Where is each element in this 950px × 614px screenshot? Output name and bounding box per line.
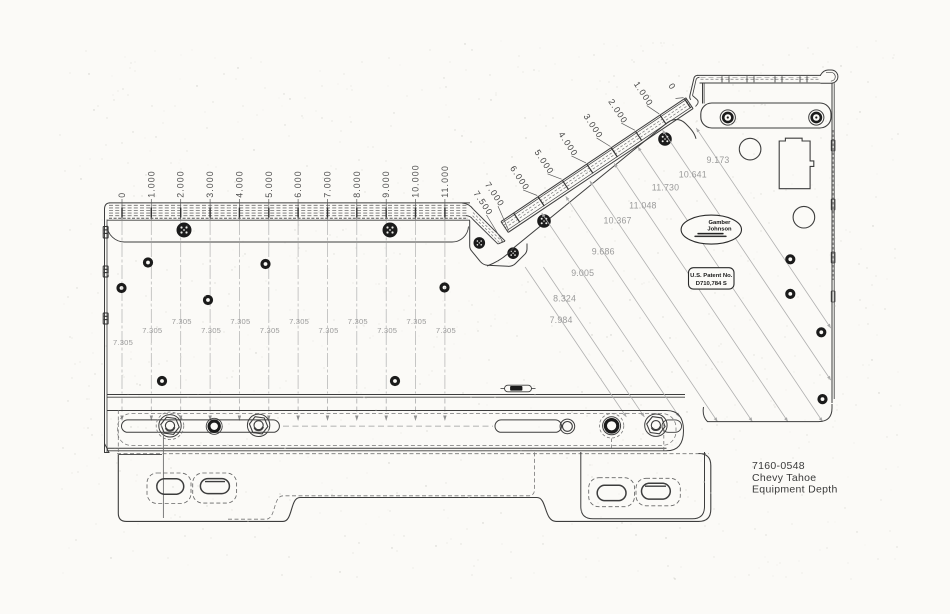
svg-text:7.305: 7.305: [142, 326, 162, 335]
svg-text:7.000: 7.000: [323, 170, 333, 198]
svg-text:7.305: 7.305: [113, 338, 133, 347]
svg-text:11.000: 11.000: [440, 165, 450, 198]
svg-text:11.048: 11.048: [629, 201, 656, 211]
svg-text:0: 0: [117, 192, 127, 198]
svg-text:9.686: 9.686: [592, 246, 615, 256]
svg-text:10.367: 10.367: [604, 216, 632, 226]
svg-text:7.984: 7.984: [550, 315, 573, 325]
svg-text:Johnson: Johnson: [707, 227, 732, 233]
svg-text:3.000: 3.000: [205, 170, 215, 198]
svg-text:9.000: 9.000: [381, 170, 391, 198]
svg-text:5.000: 5.000: [264, 170, 274, 198]
svg-text:1.000: 1.000: [146, 170, 156, 198]
svg-text:Gamber: Gamber: [709, 220, 732, 226]
svg-text:U.S. Patent No.: U.S. Patent No.: [690, 273, 733, 279]
svg-text:8.000: 8.000: [352, 170, 362, 198]
svg-text:7160-0548: 7160-0548: [752, 460, 805, 472]
svg-text:7.305: 7.305: [436, 326, 456, 335]
svg-text:7.305: 7.305: [230, 317, 250, 326]
svg-text:4.000: 4.000: [234, 170, 244, 198]
svg-text:7.305: 7.305: [406, 317, 426, 326]
svg-text:7.305: 7.305: [318, 326, 338, 335]
svg-text:10.000: 10.000: [411, 164, 421, 198]
svg-text:2.000: 2.000: [176, 170, 186, 198]
svg-text:9.173: 9.173: [706, 155, 729, 165]
svg-text:7.305: 7.305: [348, 317, 368, 326]
svg-text:8.324: 8.324: [553, 293, 576, 303]
svg-text:7.305: 7.305: [201, 326, 221, 335]
svg-text:7.305: 7.305: [289, 317, 309, 326]
svg-text:7.305: 7.305: [172, 317, 192, 326]
svg-text:11.730: 11.730: [652, 183, 679, 193]
svg-text:10.641: 10.641: [679, 170, 707, 180]
svg-text:7.305: 7.305: [377, 326, 397, 335]
svg-text:7.305: 7.305: [260, 326, 280, 335]
svg-text:6.000: 6.000: [293, 170, 303, 198]
svg-text:Equipment Depth: Equipment Depth: [752, 484, 838, 496]
svg-text:9.005: 9.005: [571, 268, 594, 278]
svg-text:Chevy Tahoe: Chevy Tahoe: [752, 472, 816, 484]
svg-text:D710,784 S: D710,784 S: [696, 281, 727, 287]
